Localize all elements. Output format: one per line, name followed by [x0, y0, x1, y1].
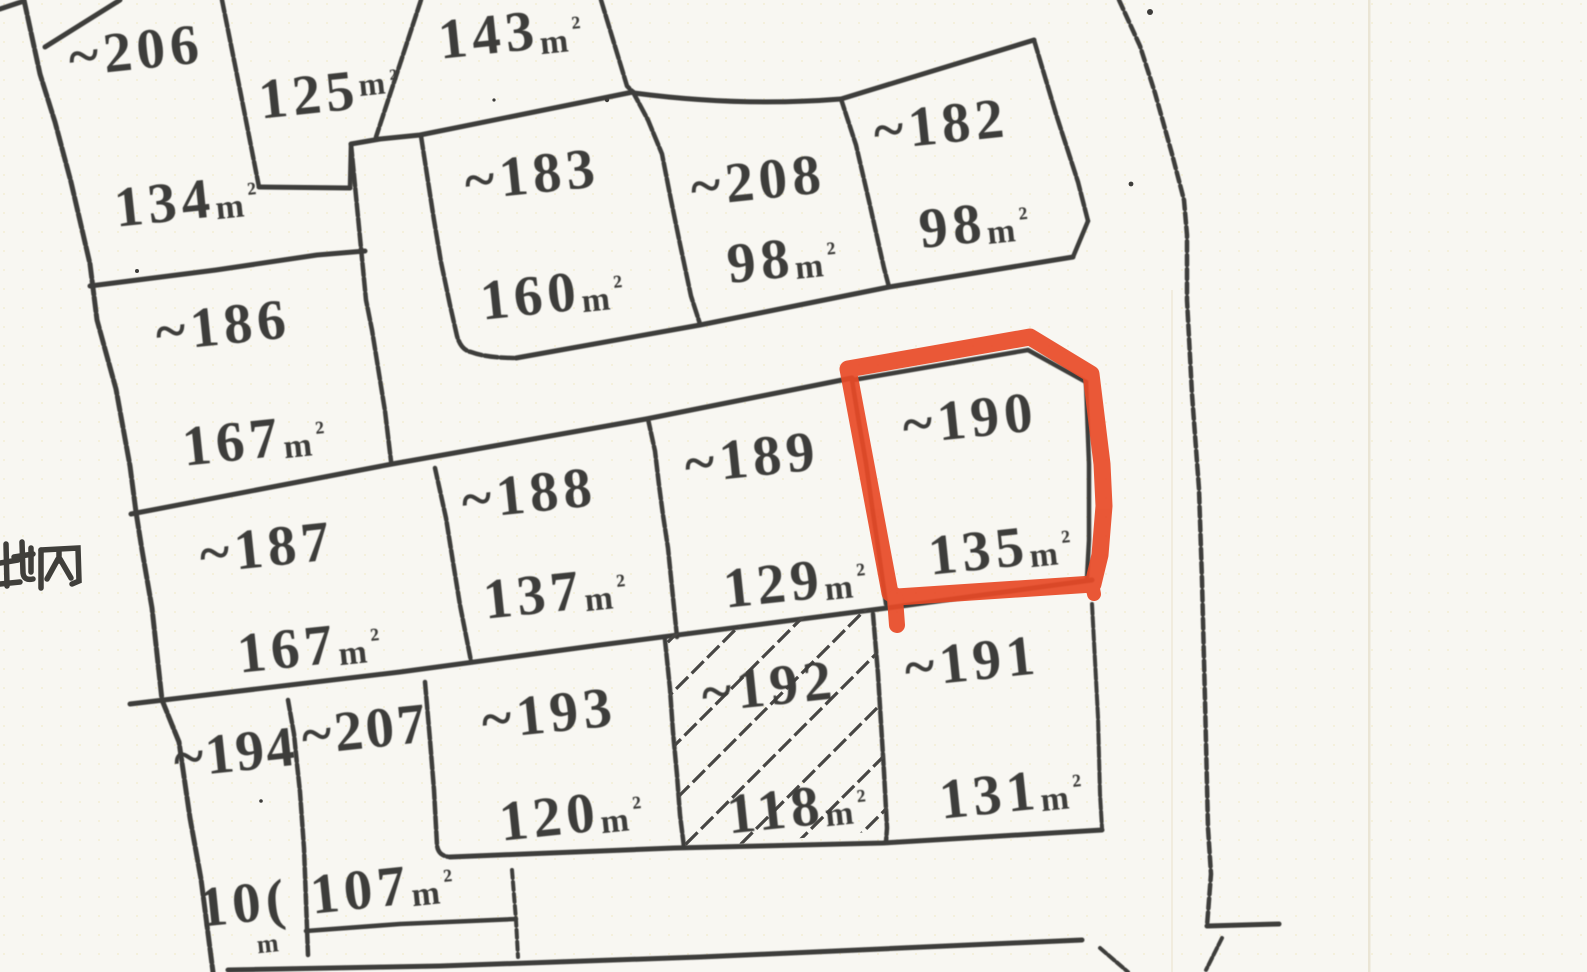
svg-text:~207: ~207	[299, 692, 432, 768]
svg-text:~194: ~194	[171, 715, 300, 791]
svg-text:m: m	[255, 928, 285, 960]
